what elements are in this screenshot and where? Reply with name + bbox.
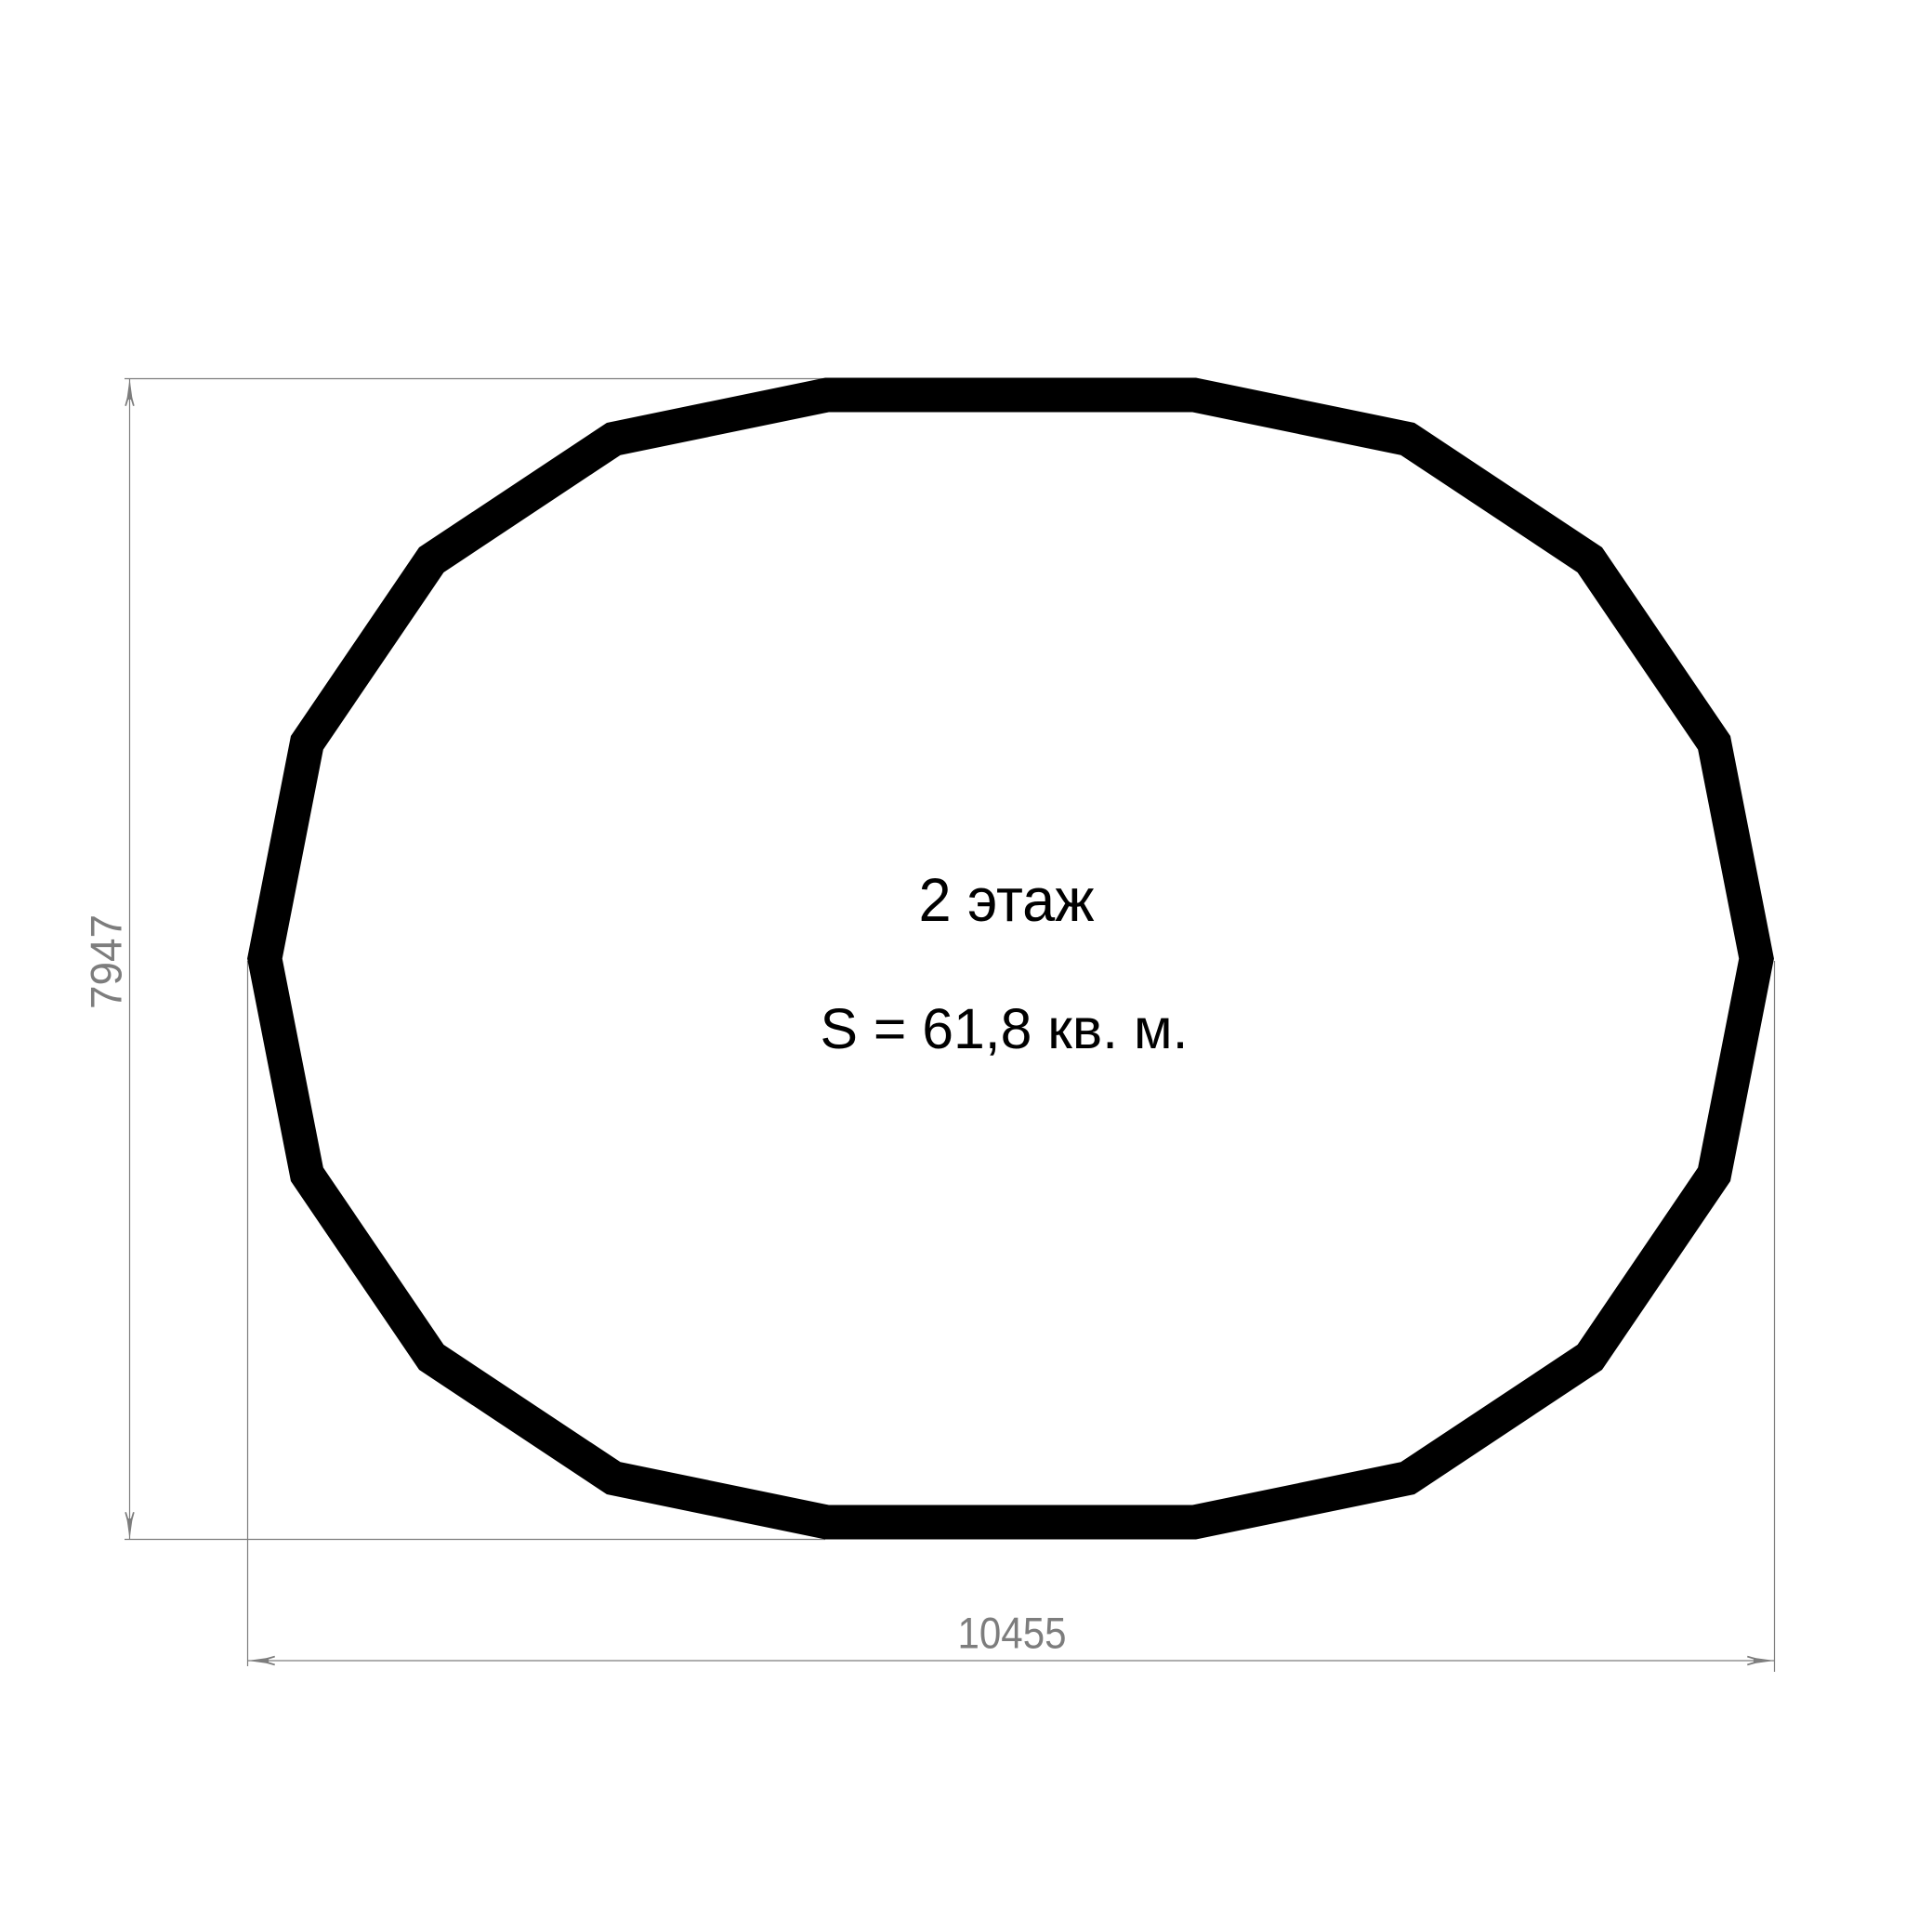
svg-text:S = 61,8 кв. м.: S = 61,8 кв. м. [821,997,1189,1060]
svg-text:7947: 7947 [83,914,132,1009]
svg-text:2 этаж: 2 этаж [919,866,1095,934]
svg-text:10455: 10455 [958,1610,1067,1659]
